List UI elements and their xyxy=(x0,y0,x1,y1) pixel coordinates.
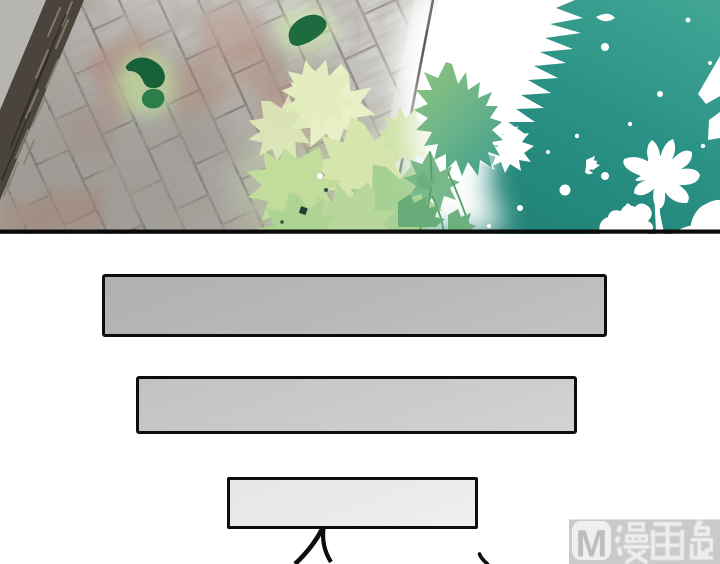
svg-text:M: M xyxy=(576,524,608,564)
